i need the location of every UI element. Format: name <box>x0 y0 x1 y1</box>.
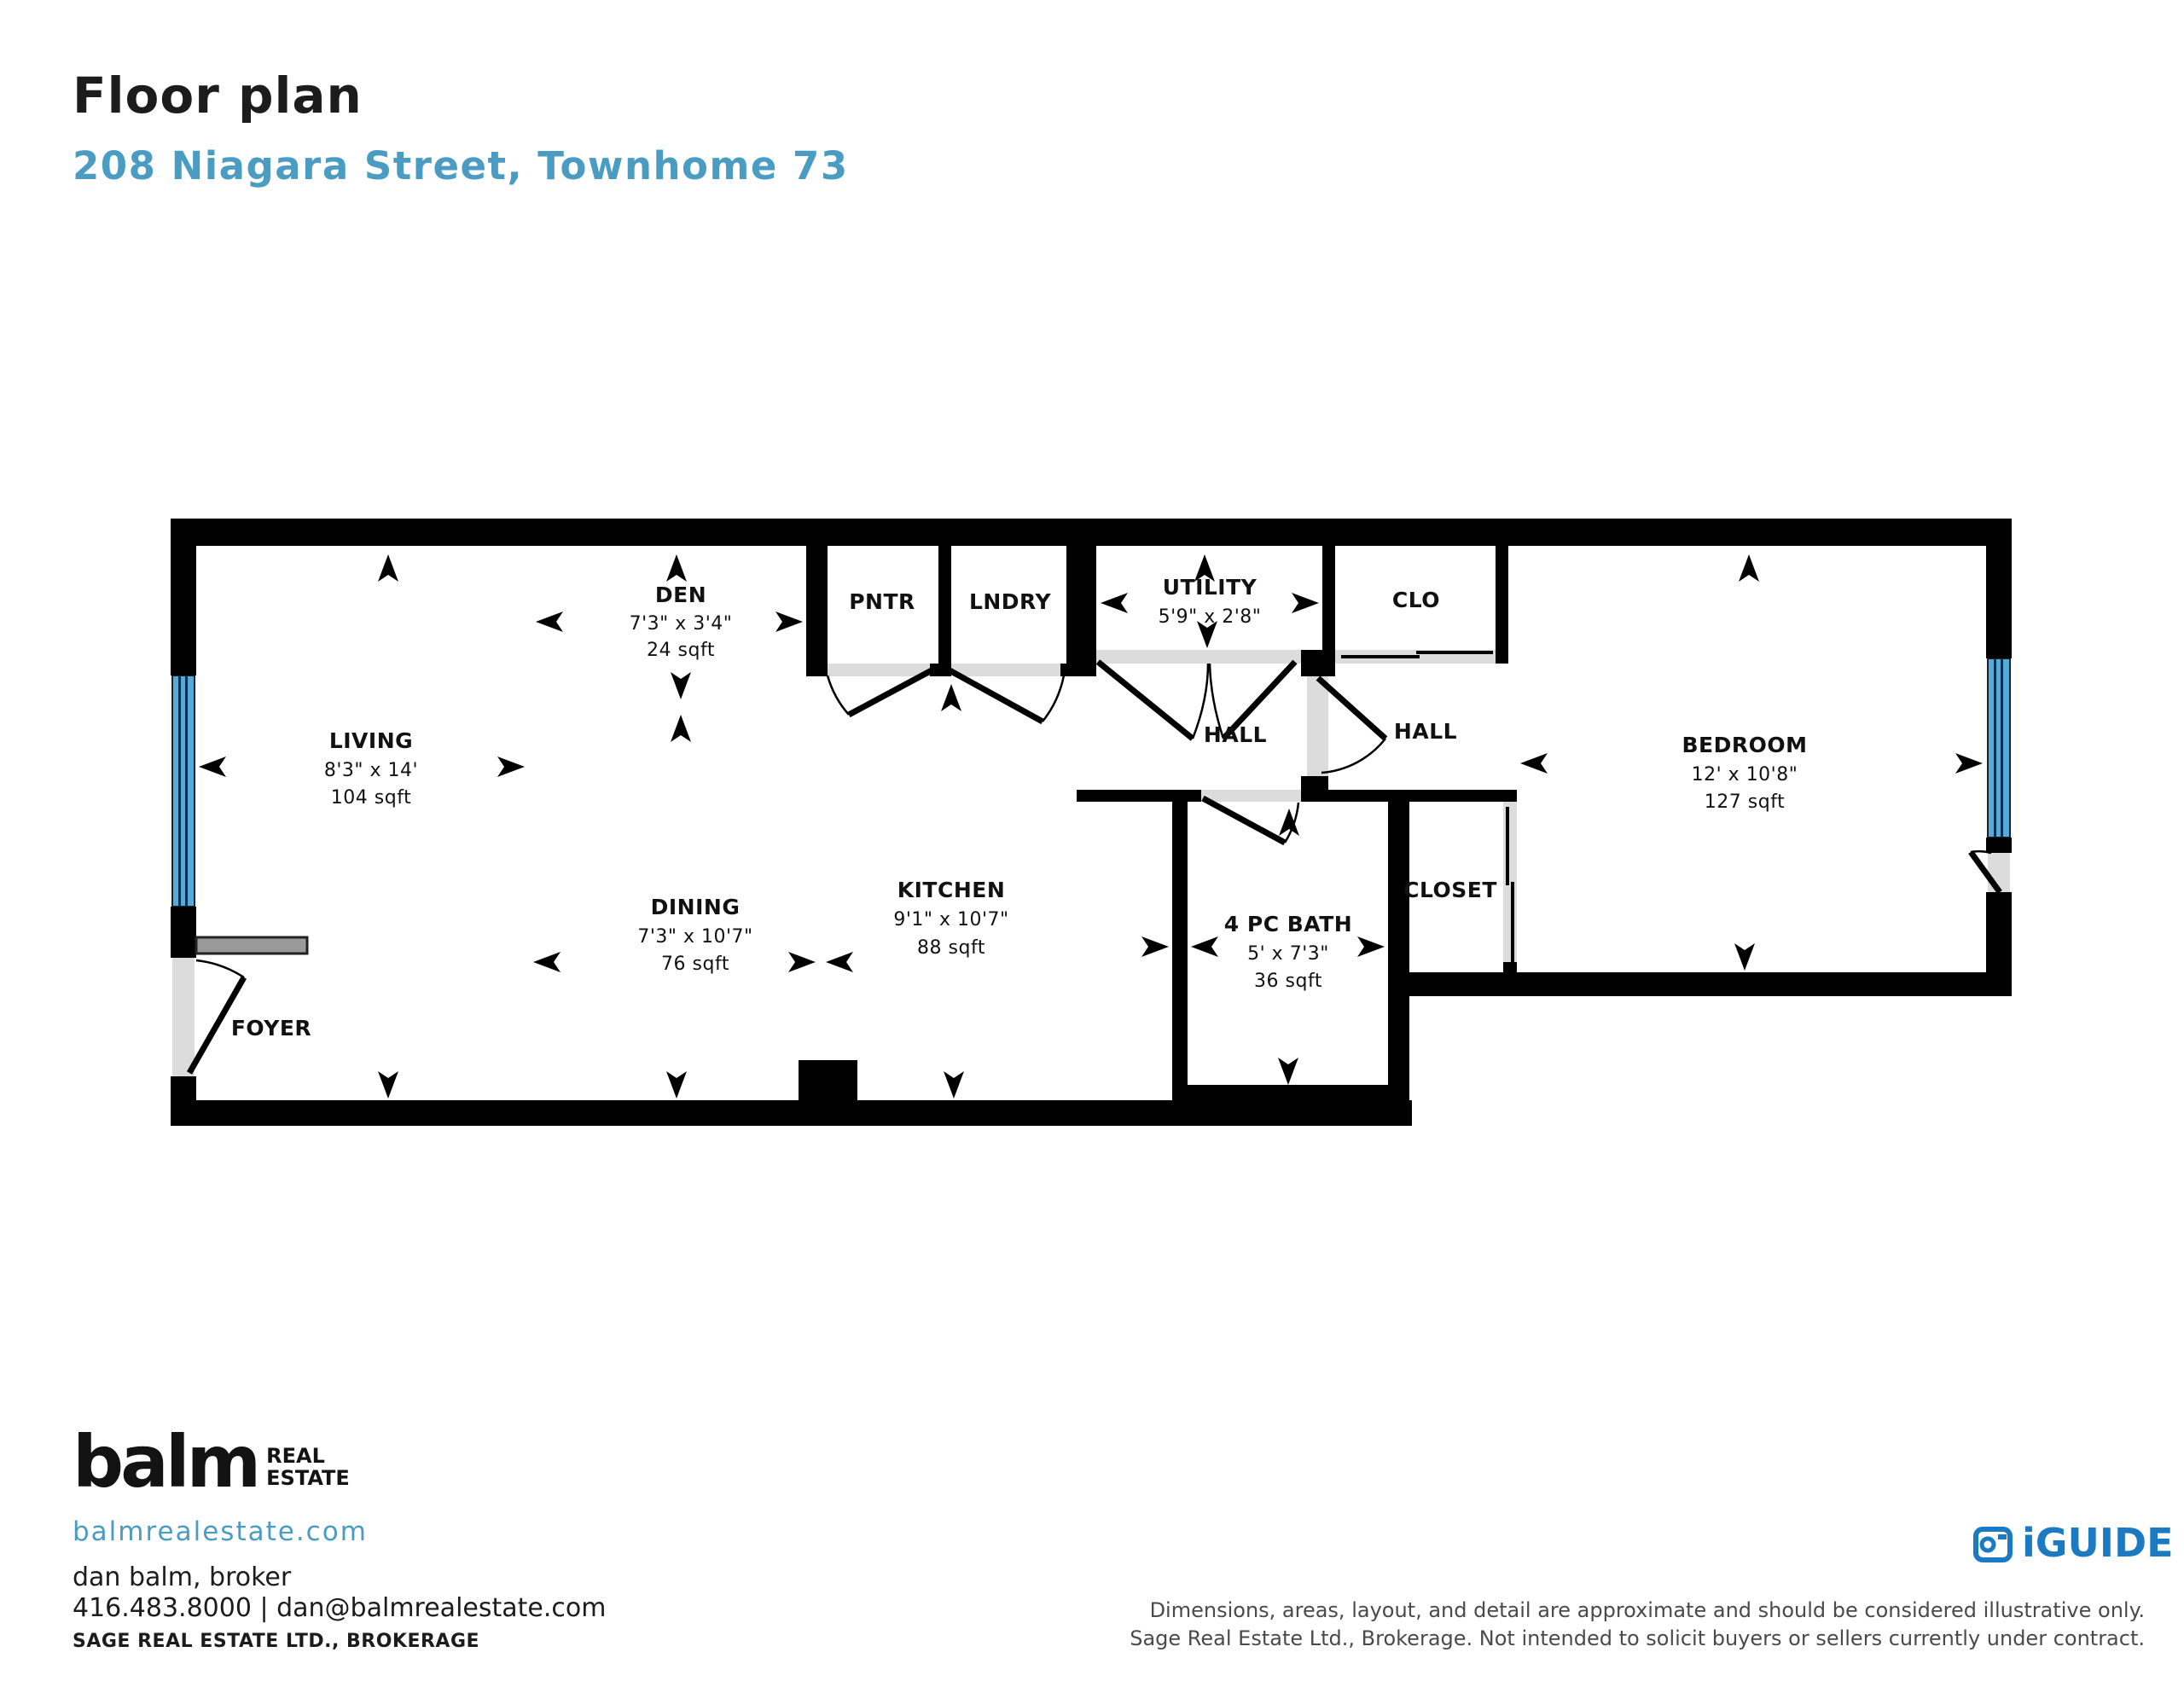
disclaimer-line2: Sage Real Estate Ltd., Brokerage. Not in… <box>1130 1625 2145 1653</box>
door-leaf <box>950 670 1043 722</box>
window-mullion <box>185 675 188 907</box>
dim-arrow-up <box>671 715 691 742</box>
door-opening <box>1503 800 1517 962</box>
foyer-name: FOYER <box>231 1016 311 1041</box>
utility-dims: 5'9" x 2'8" <box>1159 606 1262 628</box>
kitchen-dims: 9'1" x 10'7" <box>893 909 1008 930</box>
bedroom-area: 127 sqft <box>1705 791 1785 813</box>
dim-arrow-right <box>497 757 525 777</box>
wall <box>806 546 828 676</box>
disclaimer: Dimensions, areas, layout, and detail ar… <box>1130 1597 2145 1653</box>
dim-arrow-left <box>826 952 853 972</box>
iguide-camera-icon <box>1972 1521 2017 1565</box>
door-opening <box>1307 676 1328 776</box>
dim-arrow-down <box>1734 943 1755 971</box>
wall <box>1301 776 1328 802</box>
brokerage-name: SAGE REAL ESTATE LTD., BROKERAGE <box>73 1631 479 1652</box>
door-swing-arc <box>1971 851 1991 853</box>
living-name: LIVING <box>329 728 413 753</box>
iguide-logo: iGUIDE <box>1972 1520 2174 1566</box>
bath-area: 36 sqft <box>1254 971 1322 992</box>
wall <box>1172 802 1188 1100</box>
wall <box>171 907 196 958</box>
wall <box>1301 650 1335 676</box>
wall <box>930 664 950 676</box>
dim-arrow-right <box>788 952 816 972</box>
sliding-door-line <box>1416 651 1493 654</box>
utility-name: UTILITY <box>1163 575 1258 600</box>
door-leaf <box>1098 662 1193 739</box>
kitchen-area: 88 sqft <box>917 937 985 959</box>
window <box>172 675 195 907</box>
wall <box>1328 790 1517 802</box>
brand-logo: balm REAL ESTATE <box>73 1429 350 1494</box>
bath-name: 4 PC BATH <box>1224 912 1352 936</box>
door-swing-arc <box>1321 739 1385 773</box>
closet-name: CLOSET <box>1403 878 1497 902</box>
door-swing-arc <box>1043 675 1064 722</box>
den-name: DEN <box>655 583 706 607</box>
bedroom-name: BEDROOM <box>1682 733 1807 757</box>
dim-arrow-up <box>378 554 398 582</box>
wall <box>1066 546 1096 676</box>
dim-arrow-right <box>775 612 803 632</box>
hall-right-name: HALL <box>1394 719 1457 744</box>
dim-arrow-right <box>1141 936 1169 957</box>
wall <box>171 546 196 675</box>
door-leaf <box>1203 798 1285 843</box>
dining-name: DINING <box>651 895 741 919</box>
dim-arrow-down <box>944 1071 964 1099</box>
kitchen-name: KITCHEN <box>897 878 1006 902</box>
living-area: 104 sqft <box>331 787 411 809</box>
dim-arrow-left <box>533 952 561 972</box>
pntr-name: PNTR <box>849 589 915 614</box>
closet-shelf <box>196 937 307 954</box>
lndry-name: LNDRY <box>969 589 1051 614</box>
brand-tag-line2: ESTATE <box>266 1467 350 1489</box>
brand-wordmark: balm <box>73 1429 258 1494</box>
dining-area: 76 sqft <box>661 954 729 975</box>
living-dims: 8'3" x 14' <box>324 760 418 781</box>
dim-arrow-right <box>1292 593 1319 613</box>
dim-arrow-left <box>536 612 563 632</box>
door-opening <box>828 664 930 676</box>
dim-arrow-right <box>1357 936 1385 957</box>
den-area: 24 sqft <box>647 640 715 661</box>
brand-tagline: REAL ESTATE <box>266 1445 350 1489</box>
hall-left-name: HALL <box>1204 722 1267 747</box>
door-swing-arc <box>196 960 244 977</box>
window <box>1988 658 2010 838</box>
window-mullion <box>178 675 181 907</box>
page: Floor plan 208 Niagara Street, Townhome … <box>0 0 2184 1687</box>
dim-arrow-down <box>671 672 691 699</box>
wall <box>1496 546 1508 664</box>
door-swing-arc <box>828 675 849 715</box>
dim-arrow-down <box>666 1071 687 1099</box>
door-opening <box>950 664 1060 676</box>
door-leaf <box>849 670 932 715</box>
dim-arrow-right <box>1955 753 1983 774</box>
sliding-door-line <box>1506 807 1509 885</box>
bedroom-dims: 12' x 10'8" <box>1692 764 1798 786</box>
iguide-label: iGUIDE <box>2022 1520 2174 1566</box>
door-opening <box>1201 790 1301 802</box>
wall <box>171 519 2012 546</box>
broker-contact: 416.483.8000 | dan@balmrealestate.com <box>73 1593 606 1623</box>
dim-arrow-up <box>941 684 961 711</box>
dim-arrow-down <box>1278 1058 1298 1085</box>
wall <box>1077 790 1201 802</box>
door-opening <box>172 958 195 1076</box>
wall <box>1986 838 2012 853</box>
wall <box>1986 546 2012 658</box>
bath-dims: 5' x 7'3" <box>1247 943 1329 965</box>
door-opening <box>1096 650 1301 664</box>
wall <box>1322 546 1335 650</box>
broker-name: dan balm, broker <box>73 1562 291 1592</box>
sliding-door-line <box>1511 882 1514 964</box>
wall <box>1503 962 1517 974</box>
den-dims: 7'3" x 3'4" <box>630 613 733 635</box>
dim-arrow-down <box>378 1071 398 1099</box>
disclaimer-line1: Dimensions, areas, layout, and detail ar… <box>1130 1597 2145 1625</box>
dim-arrow-left <box>199 757 226 777</box>
dim-arrow-up <box>666 554 687 582</box>
brand-tag-line1: REAL <box>266 1445 350 1467</box>
wall <box>799 1060 857 1100</box>
wall <box>1060 664 1083 676</box>
dim-arrow-left <box>1191 936 1218 957</box>
dim-arrow-left <box>1520 753 1548 774</box>
wall <box>1388 790 1409 1102</box>
brand-website-link[interactable]: balmrealestate.com <box>73 1516 368 1547</box>
window-mullion <box>2001 658 2003 838</box>
wall <box>171 1100 1412 1126</box>
dim-arrow-up <box>1739 554 1759 582</box>
dining-dims: 7'3" x 10'7" <box>637 926 752 948</box>
wall <box>938 546 951 676</box>
dim-arrow-left <box>1101 593 1128 613</box>
sliding-door-line <box>1341 655 1420 658</box>
window-mullion <box>1994 658 1996 838</box>
wall <box>1188 1085 1408 1102</box>
wall <box>1388 972 2012 996</box>
clo-name: CLO <box>1392 588 1440 612</box>
